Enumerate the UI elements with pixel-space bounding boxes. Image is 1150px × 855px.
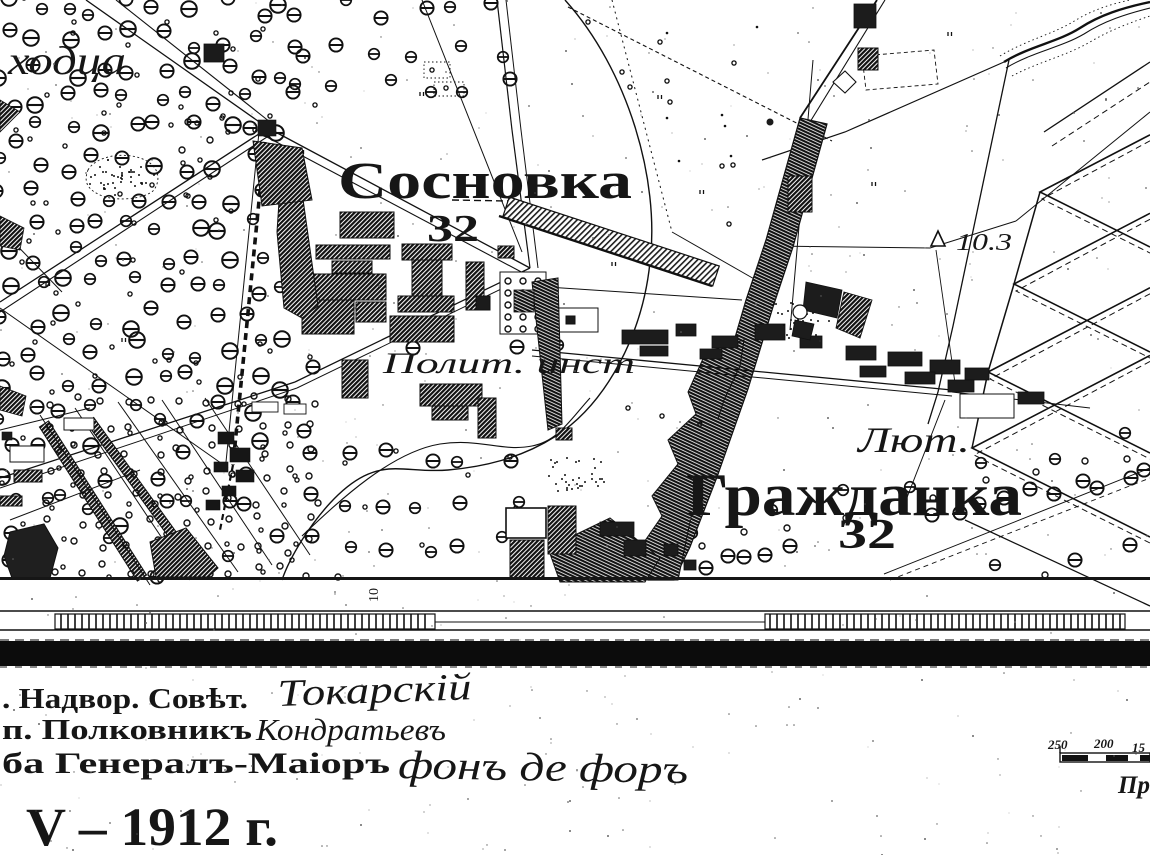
svg-text:32: 32 xyxy=(427,208,479,250)
svg-text:фонъ де форъ: фонъ де форъ xyxy=(398,742,689,792)
svg-text:Пр: Пр xyxy=(1117,772,1150,799)
svg-text:. Надвор. Совѣт.: . Надвор. Совѣт. xyxy=(2,684,248,715)
svg-text:10: 10 xyxy=(367,588,382,602)
svg-text:32: 32 xyxy=(838,512,896,558)
svg-text:10.3: 10.3 xyxy=(956,230,1012,256)
svg-text:ходца: ходца xyxy=(7,38,126,83)
svg-text:п. Полковникъ: п. Полковникъ xyxy=(2,715,252,746)
svg-text:V – 1912 г.: V – 1912 г. xyxy=(26,797,278,855)
svg-text:Сосновка: Сосновка xyxy=(338,153,632,210)
svg-text:ба Генералъ-Маіоръ: ба Генералъ-Маіоръ xyxy=(2,747,390,780)
svg-text:200: 200 xyxy=(1093,736,1114,751)
svg-text:Токарскій: Токарскій xyxy=(277,666,472,715)
svg-text:Лют.: Лют. xyxy=(857,420,970,460)
svg-text:Полит. инст: Полит. инст xyxy=(381,347,635,380)
